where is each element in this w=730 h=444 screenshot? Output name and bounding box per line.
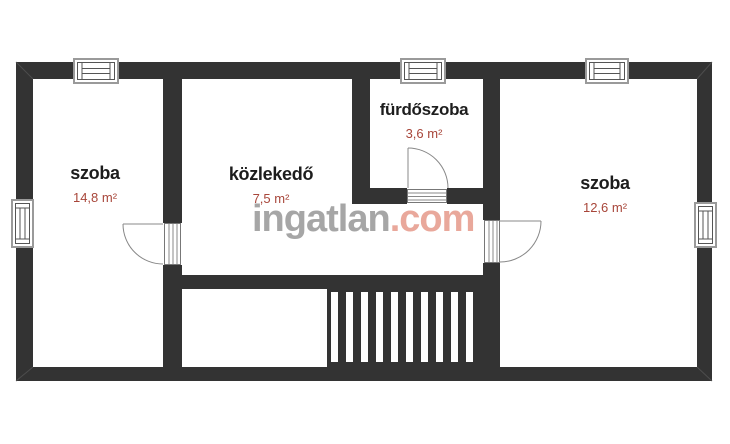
wall-bottom	[16, 367, 712, 381]
room-area: 12,6 m²	[580, 201, 630, 214]
door-icon-szoba-right	[485, 221, 542, 263]
room-name: szoba	[580, 174, 630, 194]
room-label-szoba-left: szoba 14,8 m²	[70, 164, 120, 204]
wall-szoba-left-upper	[163, 62, 182, 223]
room-label-furdoszoba: fürdőszoba 3,6 m²	[380, 101, 469, 140]
watermark-name: ingatlan	[252, 198, 390, 240]
room-label-szoba-right: szoba 12,6 m²	[580, 174, 630, 214]
door-icon-furdoszoba	[408, 148, 449, 203]
window-icon-szoba-left	[74, 59, 118, 83]
window-icon-szoba-right	[586, 59, 628, 83]
wall-center-upper	[483, 62, 500, 220]
wall-bath-left	[352, 62, 370, 203]
floorplan-canvas: szoba 14,8 m² közlekedő 7,5 m² fürdőszob…	[0, 0, 730, 444]
stairs-icon	[327, 289, 497, 367]
wall-stairs-top	[163, 275, 500, 289]
room-name: fürdőszoba	[380, 101, 469, 120]
room-area: 3,6 m²	[380, 127, 469, 140]
window-icon-left-wall	[12, 200, 33, 247]
room-name: közlekedő	[229, 165, 313, 185]
window-icon-furdoszoba	[401, 59, 445, 83]
watermark-tld: .com	[390, 198, 475, 240]
window-icon-right-wall	[695, 203, 716, 247]
door-icon-szoba-left	[123, 224, 181, 265]
watermark-ingatlan-logo: ingatlan.com	[252, 200, 474, 238]
room-area: 14,8 m²	[70, 191, 120, 204]
room-name: szoba	[70, 164, 120, 184]
